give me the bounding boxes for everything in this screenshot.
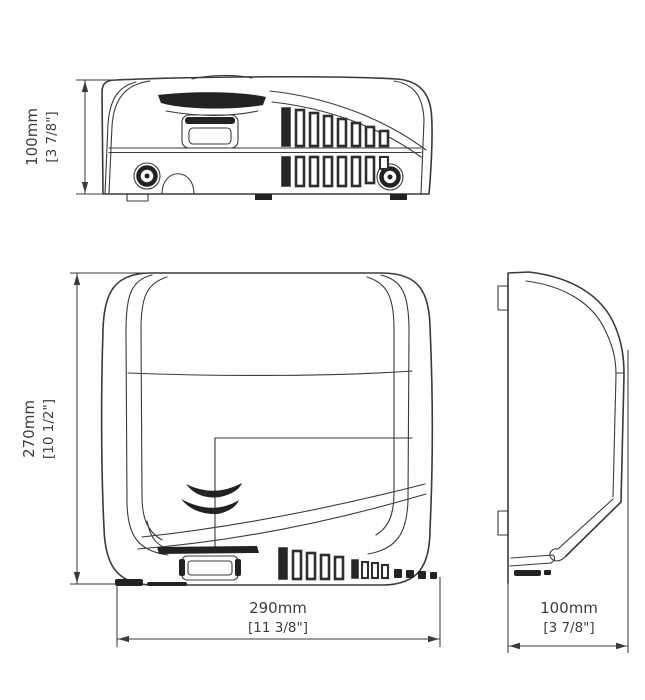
vent-slot [338,157,346,186]
arrowhead-up [82,81,88,92]
front-seam-line [128,371,412,375]
vent-slot [335,557,343,579]
nozzle-inner [188,561,232,575]
vent-slot [366,127,374,146]
air-flow-crescent-lower [181,499,239,514]
screw-boss-left [134,163,160,189]
vent-slot [352,123,360,146]
vent-slot [310,113,318,146]
vent-slot [296,157,304,186]
arrowhead-left [118,636,129,642]
dim-side-depth-inch: [3 7/8"] [543,620,594,636]
mount-tab [390,194,407,200]
vents-front-group-2 [352,560,388,578]
nozzle-housing-inner [189,128,231,144]
front-view [102,273,437,586]
vents-top-upper-row [282,108,388,146]
arrowhead-right [616,643,627,649]
front-right-band [367,275,409,554]
side-view-outline [508,272,624,583]
top-view-seam-lines [109,148,421,153]
foot-pad-mark [115,579,143,586]
vents-front-group-1 [279,548,343,579]
vent-slot [372,563,378,578]
vent-slot [380,157,388,169]
arrowhead-down [74,572,80,583]
top-view-left-band [105,81,150,194]
vent-slot [352,560,358,578]
vent-slot [296,110,304,146]
dimension-front-height: 270mm [10 1/2"] [20,273,150,584]
vent-mark [394,569,402,578]
dim-front-height-inch: [10 1/2"] [41,399,57,459]
screw-boss-right-hole [388,175,393,180]
vent-slot [352,157,360,186]
foot-pad-mark [147,582,187,586]
nozzle-housing-top [182,115,238,148]
nozzle-front [179,556,241,580]
wall-mount-tab-lower [498,511,508,535]
side-foot [510,555,555,566]
arrowhead-up [74,274,80,285]
air-outlet-slot [157,546,259,554]
vent-slot [366,157,374,183]
side-nozzle-band [550,499,613,561]
vent-slot [324,116,332,146]
arrowhead-left [509,643,520,649]
arrowhead-right [428,636,439,642]
technical-drawing-canvas: 100mm [3 7/8"] 270mm [10 1/2"] 290mm [11… [0,0,645,700]
vent-slot [321,555,329,579]
dim-top-depth-inch: [3 7/8"] [44,111,60,162]
cable-arch [162,174,194,194]
nozzle-housing-dark-band [185,117,235,124]
dim-front-height-mm: 270mm [20,400,38,458]
dim-front-width-mm: 290mm [249,599,307,617]
vents-front-small-marks [394,569,437,579]
air-flow-symbol [181,483,242,514]
nozzle-cap-right [235,559,241,576]
extension-lines [70,273,150,584]
dim-top-depth-mm: 100mm [23,108,41,166]
nozzle-outer [182,556,238,580]
vent-slot [282,157,290,186]
vent-slot [382,565,388,578]
front-left-band [126,275,168,555]
vent-slot [279,548,287,579]
vent-mark [430,572,437,579]
vent-slot [282,108,290,146]
vent-slot [307,553,315,579]
vent-slot [324,157,332,186]
air-flow-crescent-upper [186,483,242,497]
mount-tab [255,194,272,200]
nozzle-cap-left [179,559,185,576]
top-view [102,75,432,201]
dimension-top-depth: 100mm [3 7/8"] [23,80,118,194]
hand-dryer-dimension-drawing: 100mm [3 7/8"] 270mm [10 1/2"] 290mm [11… [0,0,645,700]
bottom-sweep-lines [138,484,426,549]
vent-slot [310,157,318,186]
vent-mark [418,571,426,579]
vents-top-lower-row [282,157,388,186]
dim-front-width-inch: [11 3/8"] [248,620,308,636]
side-inner-contour [526,281,616,497]
vent-slot [338,119,346,146]
mount-tab [127,194,148,201]
vent-slot [362,562,368,578]
vent-slot [293,551,301,579]
wall-mount-tab-upper [498,286,508,310]
vent-mark [406,570,414,578]
vent-slot [380,131,388,146]
side-view [498,272,624,583]
side-foot-mark [514,570,541,576]
top-inlet-slot [158,92,266,108]
screw-boss-left-hole [145,174,150,179]
arrowhead-down [82,182,88,193]
dim-side-depth-mm: 100mm [540,599,598,617]
front-view-outline [102,273,433,585]
side-foot-mark [544,570,551,575]
dimension-front-width: 290mm [11 3/8"] [117,577,440,647]
cover-swoosh-lines [270,91,426,157]
